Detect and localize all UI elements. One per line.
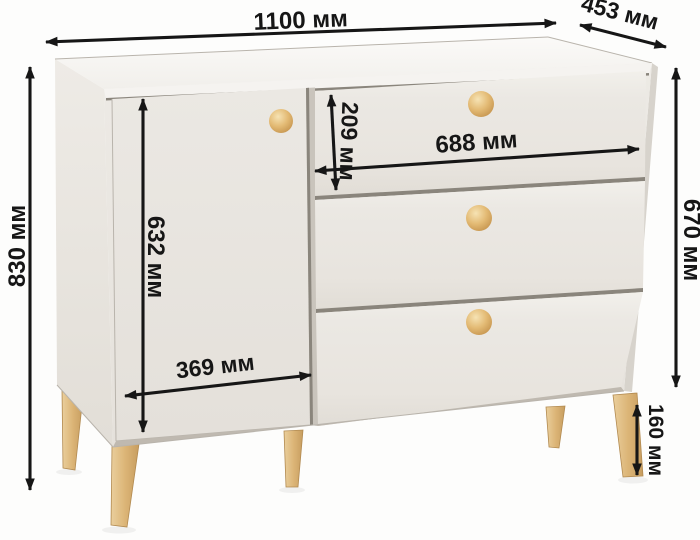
- leg-front-left: [111, 444, 139, 527]
- door-knob: [269, 109, 293, 133]
- cabinet-left-side: [55, 59, 113, 447]
- dim-drawer-height-label: 209 мм: [335, 101, 364, 181]
- drawer-1-knob: [468, 91, 494, 117]
- dim-height-label: 830 мм: [4, 205, 31, 287]
- furniture-dimension-diagram: 1100 мм 453 мм 830 мм 670 мм 160 мм 209 …: [0, 0, 700, 540]
- drawer-2-knob: [466, 205, 492, 231]
- drawer-3-knob: [466, 309, 492, 335]
- drawer-2: [315, 181, 645, 309]
- leg-back-right: [546, 406, 565, 448]
- dim-body-height-label: 670 мм: [678, 199, 700, 281]
- commode-diagram-canvas: 1100 мм 453 мм 830 мм 670 мм 160 мм 209 …: [0, 0, 700, 540]
- dim-width-label: 1100 мм: [253, 5, 348, 36]
- dim-door-height-label: 632 мм: [142, 216, 169, 298]
- floor-shadows: [56, 469, 648, 534]
- leg-middle: [284, 430, 303, 487]
- dim-drawer-width-label: 688 мм: [435, 126, 519, 159]
- dim-leg-height-label: 160 мм: [644, 404, 667, 476]
- dim-depth-label: 453 мм: [579, 0, 662, 35]
